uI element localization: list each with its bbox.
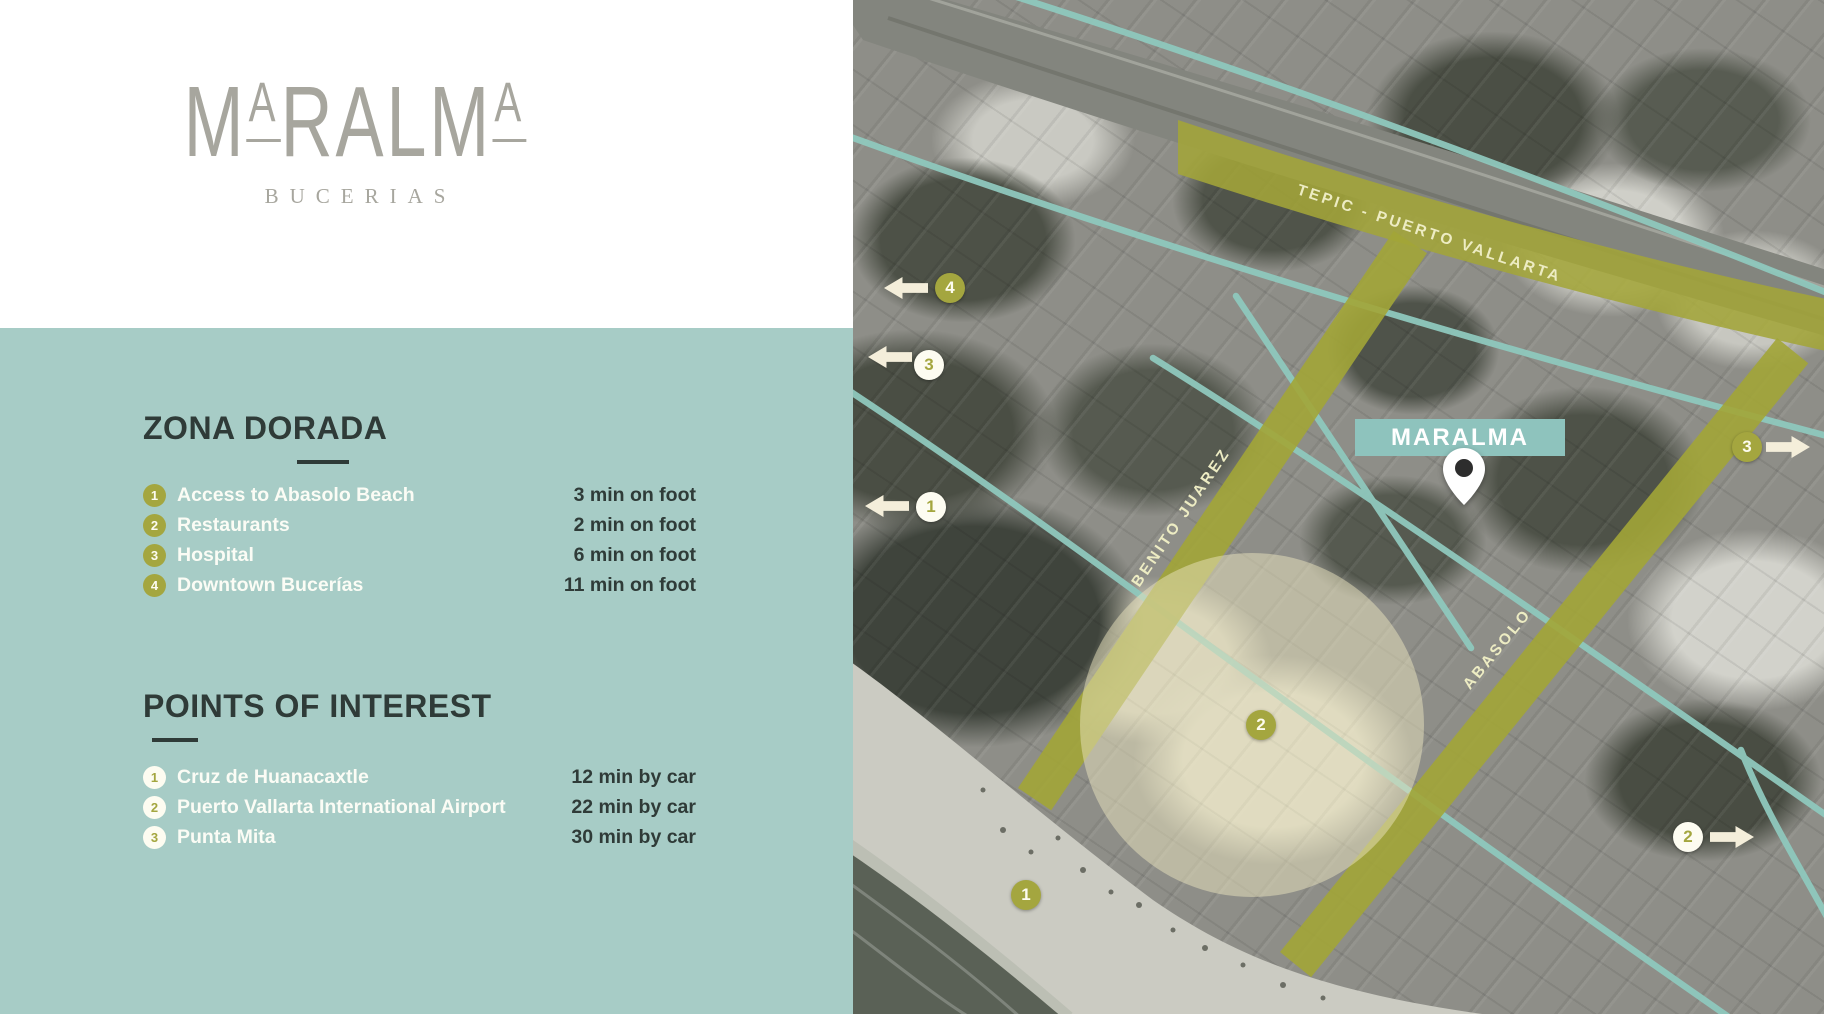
marker-punta-mita: 3 — [914, 350, 944, 380]
logo-letter-small: A — [247, 74, 281, 142]
info-panel: ZONA DORADA 1 Access to Abasolo Beach 3 … — [0, 328, 853, 1014]
logo-wordmark: MARALMA — [184, 72, 527, 172]
item-badge: 3 — [143, 544, 166, 567]
logo-letter: R — [281, 66, 336, 178]
header-panel: MARALMA BUCERIAS — [0, 0, 853, 328]
item-time: 11 min on foot — [564, 574, 696, 597]
list-item: 3 Hospital 6 min on foot — [143, 540, 696, 570]
marker-cruz-de-huanacaxtle: 1 — [916, 492, 946, 522]
item-badge: 1 — [143, 484, 166, 507]
logo-letter-small: A — [492, 74, 526, 142]
logo-letter: A — [336, 66, 387, 178]
page: MARALMA BUCERIAS ZONA DORADA 1 Access to… — [0, 0, 1824, 1014]
zona-dorada-list: 1 Access to Abasolo Beach 3 min on foot … — [143, 480, 696, 600]
marker-restaurants: 2 — [1246, 710, 1276, 740]
marker-downtown-bucerias: 4 — [935, 273, 965, 303]
points-of-interest-underline — [152, 738, 198, 742]
list-item: 3 Punta Mita 30 min by car — [143, 822, 696, 852]
marker-beach-access: 1 — [1011, 880, 1041, 910]
brand-logo: MARALMA BUCERIAS — [0, 72, 710, 209]
item-label: Cruz de Huanacaxtle — [177, 766, 369, 789]
logo-subtitle: BUCERIAS — [0, 184, 710, 209]
item-badge: 1 — [143, 766, 166, 789]
item-time: 12 min by car — [571, 766, 696, 789]
item-label: Restaurants — [177, 514, 290, 537]
item-label: Hospital — [177, 544, 254, 567]
satellite-map: TEPIC - PUERTO VALLARTA BENITO JUAREZ AB… — [853, 0, 1824, 1014]
list-item: 1 Access to Abasolo Beach 3 min on foot — [143, 480, 696, 510]
item-label: Puerto Vallarta International Airport — [177, 796, 506, 819]
item-time: 3 min on foot — [574, 484, 696, 507]
item-badge: 3 — [143, 826, 166, 849]
road-highway-highlight — [1178, 120, 1824, 352]
item-badge: 2 — [143, 796, 166, 819]
item-time: 22 min by car — [571, 796, 696, 819]
logo-letter: L — [386, 66, 429, 178]
points-of-interest-title: POINTS OF INTEREST — [143, 688, 492, 725]
item-label: Downtown Bucerías — [177, 574, 363, 597]
item-label: Access to Abasolo Beach — [177, 484, 415, 507]
item-time: 2 min on foot — [574, 514, 696, 537]
list-item: 2 Puerto Vallarta International Airport … — [143, 792, 696, 822]
item-label: Punta Mita — [177, 826, 276, 849]
points-of-interest-list: 1 Cruz de Huanacaxtle 12 min by car 2 Pu… — [143, 762, 696, 852]
marker-hospital: 3 — [1732, 432, 1762, 462]
item-badge: 2 — [143, 514, 166, 537]
logo-letter: M — [184, 66, 247, 178]
location-pin-icon — [1441, 447, 1487, 512]
item-time: 6 min on foot — [574, 544, 696, 567]
list-item: 1 Cruz de Huanacaxtle 12 min by car — [143, 762, 696, 792]
list-item: 2 Restaurants 2 min on foot — [143, 510, 696, 540]
map-overlay-graphics: TEPIC - PUERTO VALLARTA BENITO JUAREZ AB… — [853, 0, 1824, 1014]
list-item: 4 Downtown Bucerías 11 min on foot — [143, 570, 696, 600]
marker-airport: 2 — [1673, 822, 1703, 852]
item-badge: 4 — [143, 574, 166, 597]
item-time: 30 min by car — [571, 826, 696, 849]
logo-letter: M — [429, 66, 492, 178]
zona-dorada-underline — [297, 460, 349, 464]
zona-dorada-title: ZONA DORADA — [143, 410, 387, 447]
